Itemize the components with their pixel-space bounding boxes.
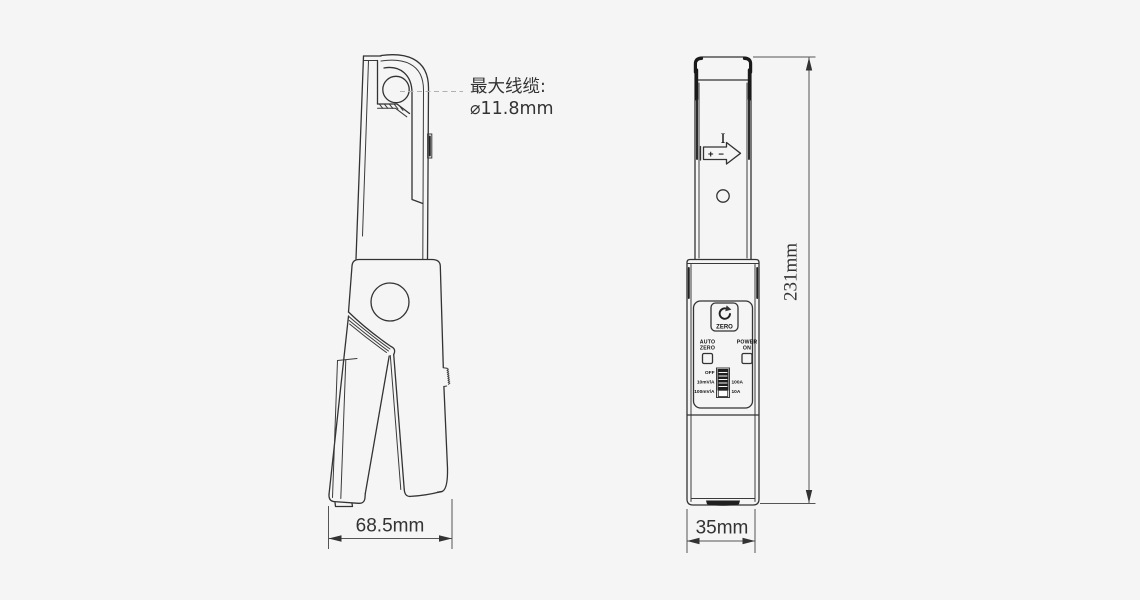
clamp-hook-section — [356, 55, 432, 259]
side-view-drawing: 最大线缆: ⌀11.8mm 68.5mm — [329, 55, 554, 549]
leg-panel-top — [338, 359, 358, 361]
front-clamp-section: I + − — [695, 57, 751, 259]
switch-knob[interactable] — [718, 369, 729, 397]
technical-drawing-canvas: 最大线缆: ⌀11.8mm 68.5mm I — [0, 0, 1140, 600]
front-width-dimension: 35mm — [687, 509, 755, 553]
right-foot — [404, 489, 441, 496]
auto-zero-label-line2: ZERO — [700, 346, 715, 352]
zero-button-label: ZERO — [716, 325, 733, 331]
zero-button[interactable]: ZERO — [711, 303, 738, 331]
jaw-hatching — [378, 104, 410, 117]
hook-outer-inner-line — [381, 60, 424, 259]
max-cable-circle — [383, 76, 409, 102]
current-letter: I — [721, 131, 726, 147]
arrowhead-left — [687, 538, 700, 544]
arrowhead-bottom — [806, 490, 812, 503]
annotation-text-line1: 最大线缆: — [470, 77, 546, 97]
thumb-hole — [371, 283, 409, 321]
auto-zero-indicator: AUTO ZERO — [700, 340, 715, 364]
thumbwheel — [443, 368, 449, 387]
hinge-spring-curves — [349, 312, 395, 355]
minus-sign: − — [719, 150, 725, 160]
body-top-right-outline — [349, 260, 444, 368]
front-body: ZERO AUTO ZERO POWER ON — [687, 260, 759, 506]
clamp-meter-dimension-drawing: 最大线缆: ⌀11.8mm 68.5mm I — [0, 0, 1140, 600]
control-panel: ZERO AUTO ZERO POWER ON — [694, 301, 758, 408]
hook-slot-edge — [384, 67, 423, 203]
switch-label-10a: 10A — [732, 389, 741, 395]
switch-label-10mva: 10mV/A — [697, 380, 715, 386]
auto-zero-led — [703, 354, 713, 364]
power-on-led — [742, 354, 752, 364]
bottom-tab — [706, 501, 740, 506]
switch-label-100mva: 100mV/A — [694, 389, 715, 395]
annotation-text-line2: ⌀11.8mm — [470, 99, 554, 119]
side-body — [329, 260, 450, 507]
side-width-value: 68.5mm — [356, 516, 425, 537]
left-foot — [329, 494, 365, 504]
height-value: 231mm — [781, 243, 802, 301]
zero-reset-icon — [720, 305, 732, 318]
power-on-label-line2: ON — [743, 346, 751, 352]
height-dimension: 231mm — [753, 57, 816, 504]
right-leg — [390, 355, 441, 497]
arrowhead-left — [329, 535, 342, 542]
front-width-value: 35mm — [696, 518, 749, 539]
switch-label-100a: 100A — [732, 380, 744, 386]
bar-inner-edge — [363, 61, 369, 237]
arrowhead-right — [439, 535, 452, 542]
front-view-drawing: I + − — [687, 57, 816, 553]
arrowhead-top — [806, 58, 812, 71]
arrowhead-right — [743, 538, 756, 544]
plus-sign: + — [708, 150, 714, 160]
range-switch[interactable]: OFF 10mV/A 100mV/A 100A 10A — [694, 368, 743, 398]
switch-label-off: OFF — [705, 370, 715, 376]
power-on-indicator: POWER ON — [737, 340, 758, 364]
hook-outer-edge — [381, 55, 429, 259]
body-lower-right-edge — [438, 387, 448, 493]
alignment-mark-circle — [717, 190, 729, 202]
